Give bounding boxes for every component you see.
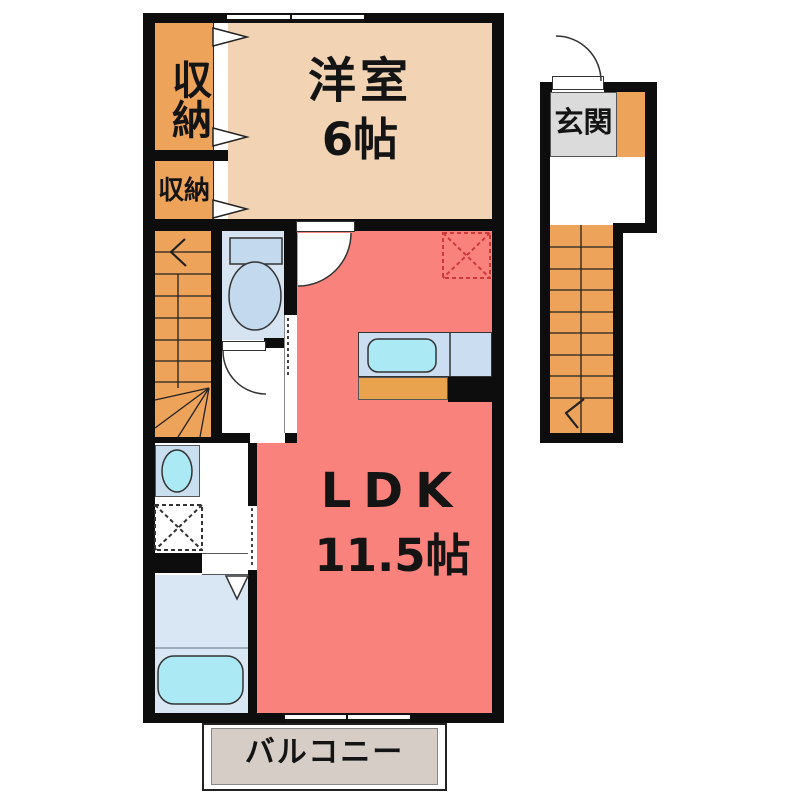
wall-under-stairs-left <box>155 437 211 443</box>
window-top <box>227 13 364 23</box>
balcony-label: バルコニー <box>211 738 438 768</box>
kitchen-counter <box>358 332 492 377</box>
floor-plan: 収納 収納 洋室 6帖 LDK 11.5帖 玄関 バルコニー <box>0 0 800 800</box>
hall-bottom-doorway <box>250 433 285 443</box>
ldk-size-label: 11.5帖 <box>280 533 505 578</box>
entrance-wall-bottom <box>540 433 623 443</box>
closet-door-strip <box>213 23 228 219</box>
entrance-hall <box>550 157 645 223</box>
wall-left <box>143 13 155 723</box>
window-balcony-tick <box>346 715 348 721</box>
western-room-door-leaf <box>296 221 355 232</box>
washroom-sliding-door-strip <box>248 506 257 570</box>
wall-washroom-bathroom <box>155 553 202 573</box>
bathroom <box>155 575 248 713</box>
entrance-label: 玄関 <box>550 108 617 137</box>
wall-right <box>492 13 504 723</box>
entrance-step <box>617 92 645 157</box>
ldk-label: LDK <box>280 467 505 515</box>
wall-toilet-stub <box>264 338 284 348</box>
wall-hall-ldk <box>284 230 297 315</box>
wall-top-right-segment <box>364 13 504 23</box>
kitchen-counter-base <box>358 377 448 400</box>
wall-top-left-segment <box>143 13 227 23</box>
closet-upper-label: 収納 <box>162 36 208 162</box>
entrance-wall-top-left <box>540 82 552 92</box>
entrance-door-swing-arc <box>556 36 601 81</box>
stairs-right-area <box>550 225 613 433</box>
kitchen-black-block <box>448 375 492 402</box>
washbasin-unit <box>155 445 200 497</box>
wall-bottom-right-segment <box>410 713 504 723</box>
toilet-room <box>222 230 284 340</box>
western-room-label: 洋室 <box>230 57 490 105</box>
window-top-midline <box>227 19 364 21</box>
window-balcony <box>285 713 410 723</box>
stairs-left-area <box>155 230 211 437</box>
toilet-door-leaf <box>222 341 266 351</box>
entrance-door-leaf <box>552 76 604 90</box>
entrance-wall-right-upper <box>645 82 657 233</box>
hallway <box>222 340 284 433</box>
wall-washroom-ldk-lower <box>248 570 257 713</box>
wall-bottom-left-segment <box>143 713 285 723</box>
wall-washroom-ldk-upper <box>248 443 257 506</box>
hall-sliding-door-strip <box>284 315 297 433</box>
window-top-tick <box>290 15 292 21</box>
closet-lower-label: 収納 <box>153 178 215 204</box>
western-room-size-label: 6帖 <box>230 117 490 162</box>
entrance-wall-right-lower <box>613 223 623 443</box>
wall-stairs-toilet <box>211 230 222 443</box>
entrance-wall-left <box>540 82 550 443</box>
bathroom-door-band <box>202 553 248 575</box>
